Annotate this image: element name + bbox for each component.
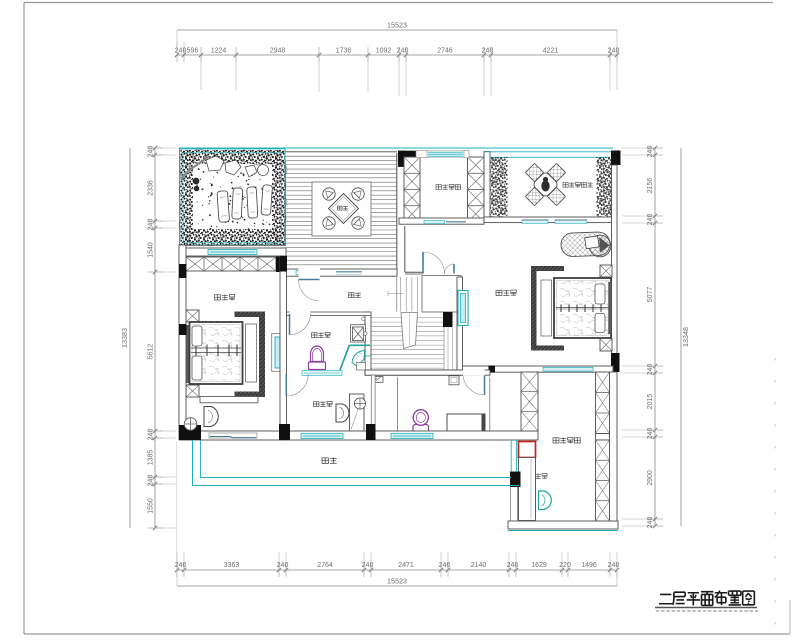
svg-text:240: 240 bbox=[277, 562, 289, 569]
svg-text:1540: 1540 bbox=[148, 242, 155, 258]
svg-text:4221: 4221 bbox=[543, 48, 559, 55]
svg-text:1224: 1224 bbox=[211, 48, 227, 55]
svg-text:5612: 5612 bbox=[148, 344, 155, 360]
svg-text:240: 240 bbox=[439, 562, 451, 569]
svg-text:1736: 1736 bbox=[336, 48, 352, 55]
svg-text:240: 240 bbox=[148, 219, 155, 231]
svg-text:1385: 1385 bbox=[148, 450, 155, 466]
svg-text:240: 240 bbox=[148, 146, 155, 158]
svg-text:3363: 3363 bbox=[224, 562, 240, 569]
svg-text:240: 240 bbox=[175, 562, 187, 569]
svg-text:1550: 1550 bbox=[148, 498, 155, 514]
svg-text:220: 220 bbox=[559, 562, 571, 569]
svg-text:240: 240 bbox=[608, 48, 620, 55]
svg-text:240: 240 bbox=[647, 364, 654, 376]
svg-text:2471: 2471 bbox=[398, 562, 414, 569]
svg-text:2140: 2140 bbox=[471, 562, 487, 569]
svg-text:240: 240 bbox=[647, 214, 654, 226]
svg-text:2746: 2746 bbox=[437, 48, 453, 55]
svg-text:15523: 15523 bbox=[387, 21, 407, 30]
svg-text:240: 240 bbox=[647, 428, 654, 440]
svg-text:2948: 2948 bbox=[270, 48, 286, 55]
svg-text:240: 240 bbox=[647, 517, 654, 529]
svg-text:240: 240 bbox=[362, 562, 374, 569]
svg-text:240: 240 bbox=[148, 475, 155, 487]
svg-text:240: 240 bbox=[482, 48, 494, 55]
svg-text:240: 240 bbox=[397, 48, 409, 55]
svg-text:2336: 2336 bbox=[148, 180, 155, 196]
svg-text:1496: 1496 bbox=[581, 562, 597, 569]
svg-text:240: 240 bbox=[148, 429, 155, 441]
svg-text:240: 240 bbox=[175, 48, 187, 55]
svg-text:240: 240 bbox=[608, 562, 620, 569]
svg-text:240: 240 bbox=[647, 146, 654, 158]
svg-text:5077: 5077 bbox=[647, 287, 654, 303]
svg-text:13383: 13383 bbox=[120, 328, 129, 348]
svg-text:240: 240 bbox=[507, 562, 519, 569]
svg-text:15523: 15523 bbox=[387, 577, 407, 586]
svg-text:2900: 2900 bbox=[647, 470, 654, 486]
svg-text:13348: 13348 bbox=[681, 327, 690, 347]
svg-text:1092: 1092 bbox=[376, 48, 392, 55]
svg-text:2156: 2156 bbox=[647, 178, 654, 194]
svg-text:2764: 2764 bbox=[317, 562, 333, 569]
svg-text:596: 596 bbox=[187, 48, 199, 55]
svg-text:1629: 1629 bbox=[531, 562, 547, 569]
svg-text:2015: 2015 bbox=[647, 394, 654, 410]
